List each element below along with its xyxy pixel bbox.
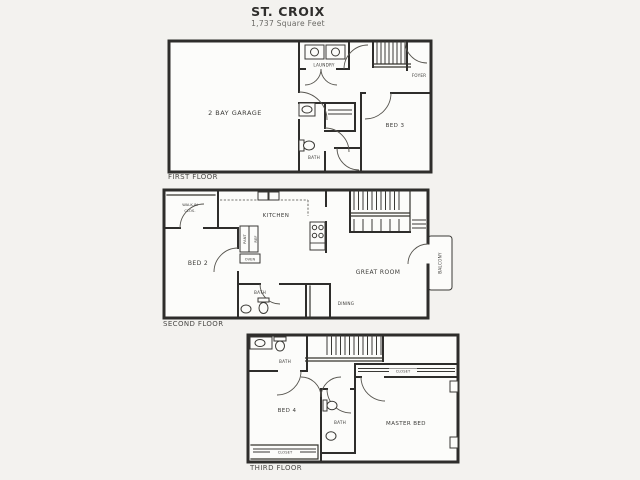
room-label-dining: DINING [338,301,354,306]
first-floor-caption: FIRST FLOOR [168,173,218,181]
third-floor-outline [248,335,458,462]
toilet-icon [274,337,286,351]
room-label-bath-first: BATH [308,155,320,160]
second-floor-caption: SECOND FLOOR [163,320,223,328]
plan-subtitle: 1,737 Square Feet [128,19,448,28]
wall-notch-upper [450,381,458,392]
toilet-icon [258,298,269,314]
second-floor-outline [164,190,428,318]
label-closet-bottom: CLOSET [278,451,293,455]
plan-title: ST. CROIX [128,4,448,19]
sink-icon [241,305,251,313]
room-label-walkin-2: CLOS. [184,209,195,213]
room-label-bath-mid: BATH [334,420,346,425]
sink-icon-mid [326,432,336,440]
label-pantry: PANT [243,233,247,243]
room-label-laundry: LAUNDRY [313,63,335,68]
sink-icon [250,337,272,349]
wall-notch-lower [450,437,458,448]
room-label-kitchen: KITCHEN [263,213,290,219]
toilet-icon-mid [323,400,337,411]
room-label-balcony: BALCONY [438,252,443,274]
room-label-master: MASTER BED [386,421,426,427]
room-label-great-room: GREAT ROOM [356,269,401,276]
room-label-bed3: BED 3 [386,123,405,129]
sink-icon [299,103,315,116]
second-floor-plan: WALK-IN CLOS. BED 2 KITCHEN PANT REF OVE… [158,186,464,332]
room-label-foyer: FOYER [412,73,427,78]
floorplan-page: ST. CROIX 1,737 Square Feet [0,0,640,480]
third-floor-plan: BATH BED 4 BATH MASTER BED CLOSET CLOSET [243,331,465,479]
label-ref: REF [254,235,258,242]
toilet-icon [299,140,315,151]
room-label-bed4: BED 4 [278,408,297,414]
room-label-garage: 2 BAY GARAGE [208,109,262,117]
room-label-bath-top: BATH [279,359,291,364]
label-oven: OVEN [245,258,256,262]
range-icon [310,222,325,250]
room-label-bath-second: BATH [254,290,266,295]
room-label-walkin-1: WALK-IN [182,203,198,207]
first-floor-plan: 2 BAY GARAGE LAUNDRY FOYER BED 3 BATH [165,36,435,182]
label-closet-top: CLOSET [396,370,411,374]
room-label-bed2: BED 2 [188,260,208,267]
third-floor-caption: THIRD FLOOR [250,464,302,472]
